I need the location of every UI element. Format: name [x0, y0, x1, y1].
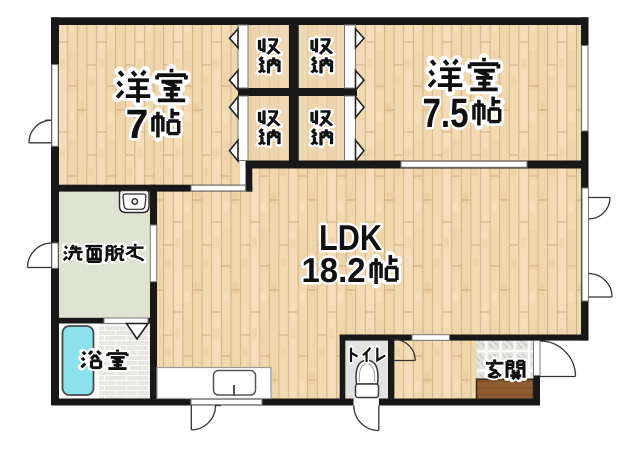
- svg-text:7.5: 7.5: [423, 90, 469, 136]
- svg-text:18.2: 18.2: [302, 252, 366, 290]
- svg-text:7: 7: [126, 101, 149, 147]
